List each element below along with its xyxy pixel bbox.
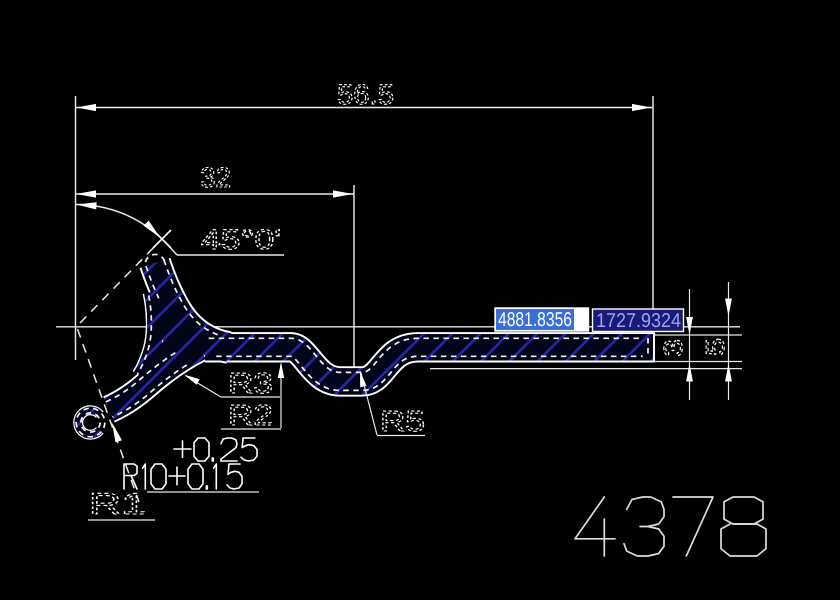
- svg-text:1727.9324: 1727.9324: [596, 310, 681, 332]
- svg-text:32: 32: [200, 162, 231, 193]
- svg-text:4881.8356: 4881.8356: [498, 309, 572, 331]
- svg-text:R3: R3: [228, 368, 273, 400]
- svg-text:R5: R5: [380, 406, 425, 438]
- svg-text:45°0': 45°0': [201, 224, 281, 255]
- svg-text:R2: R2: [228, 400, 273, 432]
- svg-text:3: 3: [658, 339, 688, 357]
- svg-text:R1: R1: [89, 488, 146, 521]
- svg-text:5: 5: [700, 338, 730, 356]
- svg-text:56.5: 56.5: [337, 79, 394, 110]
